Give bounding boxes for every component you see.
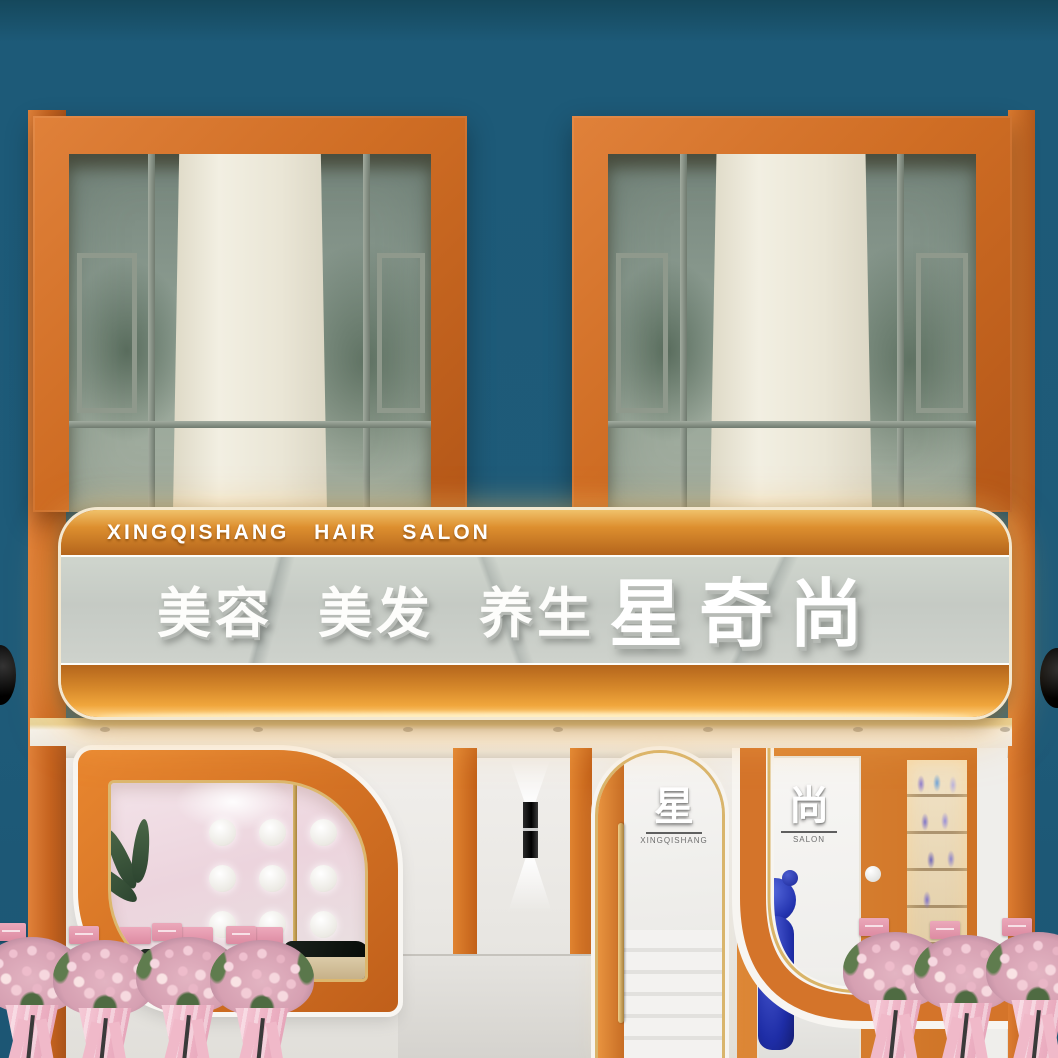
signboard-bottom-band — [61, 665, 1009, 720]
window-subframe — [77, 253, 137, 413]
upper-window-right — [572, 116, 1012, 512]
downlight-icon — [853, 727, 863, 732]
wall-lamp-left — [0, 645, 16, 705]
vanity-light — [209, 865, 236, 892]
window-mullion — [148, 154, 155, 512]
downlight-icon — [1000, 727, 1010, 732]
window-mullion — [897, 154, 904, 512]
vanity-light — [209, 819, 236, 846]
upper-window-left-glass — [69, 154, 431, 512]
curtain-right-window — [710, 154, 872, 512]
interior-reception — [624, 930, 722, 1058]
signboard: XINGQISHANG HAIR SALON 美容 美发 养生 星奇尚 — [58, 507, 1012, 720]
wall-base-panel — [398, 954, 600, 1058]
entrance-door: 星 XINGQISHANG — [598, 753, 722, 1058]
wall-lamp-right — [1040, 648, 1058, 708]
window-subframe — [377, 253, 425, 413]
door-glass: 星 XINGQISHANG — [624, 753, 722, 1058]
sign-brand-text: 星奇尚 — [609, 554, 879, 661]
flower-bouquet — [210, 940, 314, 1016]
window-subframe — [916, 253, 968, 413]
vanity-light — [310, 819, 337, 846]
interior-gold-column — [293, 783, 297, 943]
decal-underline — [646, 832, 702, 834]
orange-wall-strip — [453, 748, 477, 962]
window-mullion — [680, 154, 687, 512]
downlight-icon — [100, 727, 110, 732]
curtain-left-window — [173, 154, 327, 512]
sign-services-text: 美容 美发 养生 — [157, 569, 595, 648]
flower-stand — [986, 918, 1058, 1058]
plant-leaf — [130, 818, 153, 883]
signboard-top-band: XINGQISHANG HAIR SALON — [61, 510, 1009, 555]
window-mullion — [363, 154, 370, 512]
storefront-scene: 尚 SALON — [0, 0, 1058, 1058]
downlight-icon — [403, 727, 413, 732]
upper-window-left — [33, 116, 467, 512]
wall-sconce-icon — [523, 802, 538, 858]
window-subframe — [616, 253, 668, 413]
downlight-icon — [553, 727, 563, 732]
upper-window-right-glass — [608, 154, 976, 512]
flower-bouquet — [986, 932, 1058, 1008]
orange-wall-strip — [570, 748, 592, 962]
window-mullion — [608, 421, 976, 428]
flower-stand — [210, 926, 314, 1058]
downlight-icon — [253, 727, 263, 732]
vanity-light — [310, 911, 337, 938]
window-mullion — [69, 421, 431, 428]
door-handle — [618, 823, 624, 1023]
vanity-light — [259, 819, 286, 846]
decal-character: 星 — [636, 785, 712, 829]
sign-english-text: XINGQISHANG HAIR SALON — [107, 521, 491, 545]
vanity-light — [259, 865, 286, 892]
decal-subtext: XINGQISHANG — [636, 836, 712, 845]
glass-decal-brand: 星 XINGQISHANG — [636, 785, 712, 845]
signboard-marble-band: 美容 美发 养生 星奇尚 — [61, 555, 1009, 665]
vanity-light — [310, 865, 337, 892]
downlight-icon — [703, 727, 713, 732]
storefront-level: 尚 SALON — [0, 718, 1058, 1058]
